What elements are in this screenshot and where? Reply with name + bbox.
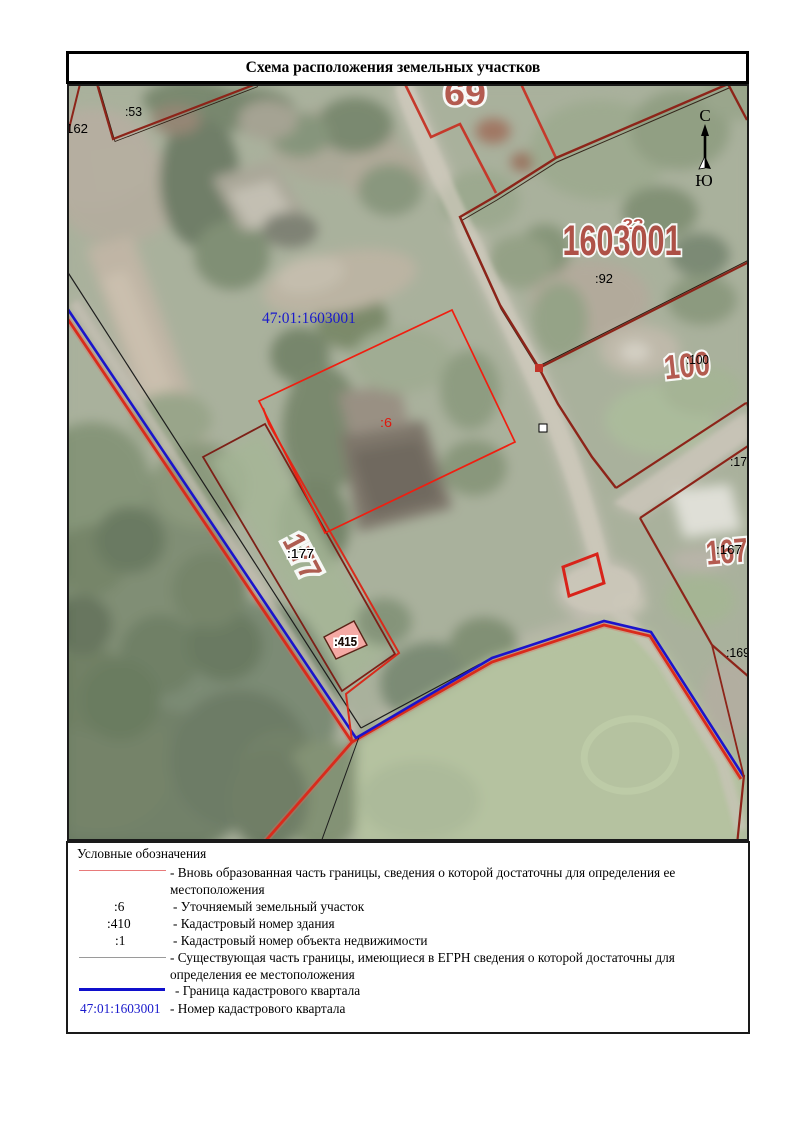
svg-text:С: С xyxy=(699,106,710,125)
svg-text::92: :92 xyxy=(595,271,613,286)
svg-text::177: :177 xyxy=(287,547,314,561)
svg-text::169: :169 xyxy=(726,646,749,660)
svg-text:69: 69 xyxy=(444,84,486,113)
svg-text::53: :53 xyxy=(125,104,142,119)
svg-text::415: :415 xyxy=(334,635,357,649)
svg-text::6: :6 xyxy=(380,416,392,430)
svg-text:1603001: 1603001 xyxy=(563,217,682,265)
svg-text::100: :100 xyxy=(686,353,709,367)
svg-text::17: :17 xyxy=(730,455,747,469)
svg-text::167: :167 xyxy=(716,543,742,557)
svg-text:47:01:1603001: 47:01:1603001 xyxy=(262,310,356,327)
svg-text:162: 162 xyxy=(67,121,88,136)
svg-text:Ю: Ю xyxy=(695,171,712,190)
